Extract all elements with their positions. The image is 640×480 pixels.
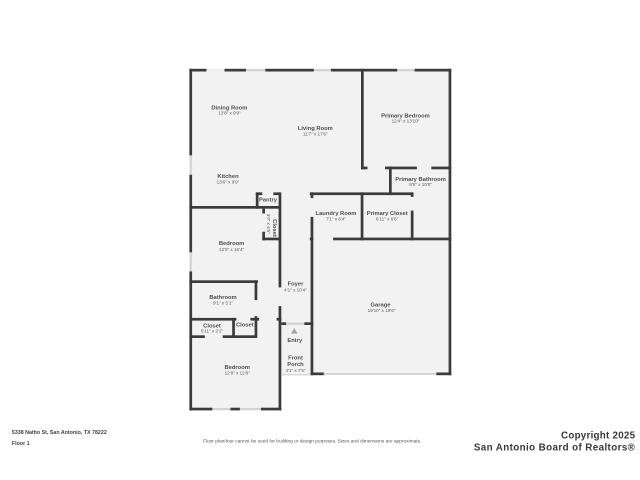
svg-text:6'11" x 6'6": 6'11" x 6'6" [376, 217, 399, 222]
svg-text:12'9" x 12'8": 12'9" x 12'8" [225, 371, 251, 376]
svg-text:3'9" x 4'5": 3'9" x 4'5" [266, 214, 271, 234]
svg-text:8'5" x 10'0": 8'5" x 10'0" [409, 182, 432, 187]
svg-text:Porch: Porch [287, 362, 304, 368]
svg-text:13'8" x 9'9": 13'8" x 9'9" [218, 111, 241, 116]
svg-text:Closet: Closet [271, 219, 277, 237]
svg-text:9'1" x 5'1": 9'1" x 5'1" [213, 301, 233, 306]
svg-text:Closet: Closet [236, 323, 254, 329]
svg-text:13'6" x 9'9": 13'6" x 9'9" [217, 180, 240, 185]
svg-text:12'4" x 13'10": 12'4" x 13'10" [392, 119, 420, 124]
svg-text:Floor plan/tour cannot be used: Floor plan/tour cannot be used for build… [203, 439, 422, 445]
svg-text:5'11" x 2'2": 5'11" x 2'2" [201, 328, 224, 333]
svg-text:Pantry: Pantry [259, 197, 278, 203]
svg-text:Entry: Entry [287, 338, 303, 344]
svg-text:19'10" x 19'6": 19'10" x 19'6" [368, 308, 396, 313]
svg-text:5338 Natho St, San Antonio, TX: 5338 Natho St, San Antonio, TX 78222 [12, 430, 107, 436]
svg-text:Floor 1: Floor 1 [12, 441, 30, 447]
svg-text:Front: Front [288, 355, 303, 361]
svg-text:San Antonio Board of Realtors®: San Antonio Board of Realtors® [474, 442, 636, 453]
svg-text:Copyright 2025: Copyright 2025 [561, 431, 636, 442]
svg-text:12'6" x 16'4": 12'6" x 16'4" [219, 247, 245, 252]
svg-text:4'1" x 10'4": 4'1" x 10'4" [284, 288, 307, 293]
svg-text:4'1" x 7'5": 4'1" x 7'5" [285, 368, 305, 373]
svg-text:11'7" x 17'6": 11'7" x 17'6" [303, 131, 328, 136]
svg-text:7'1" x 6'4": 7'1" x 6'4" [326, 217, 346, 222]
